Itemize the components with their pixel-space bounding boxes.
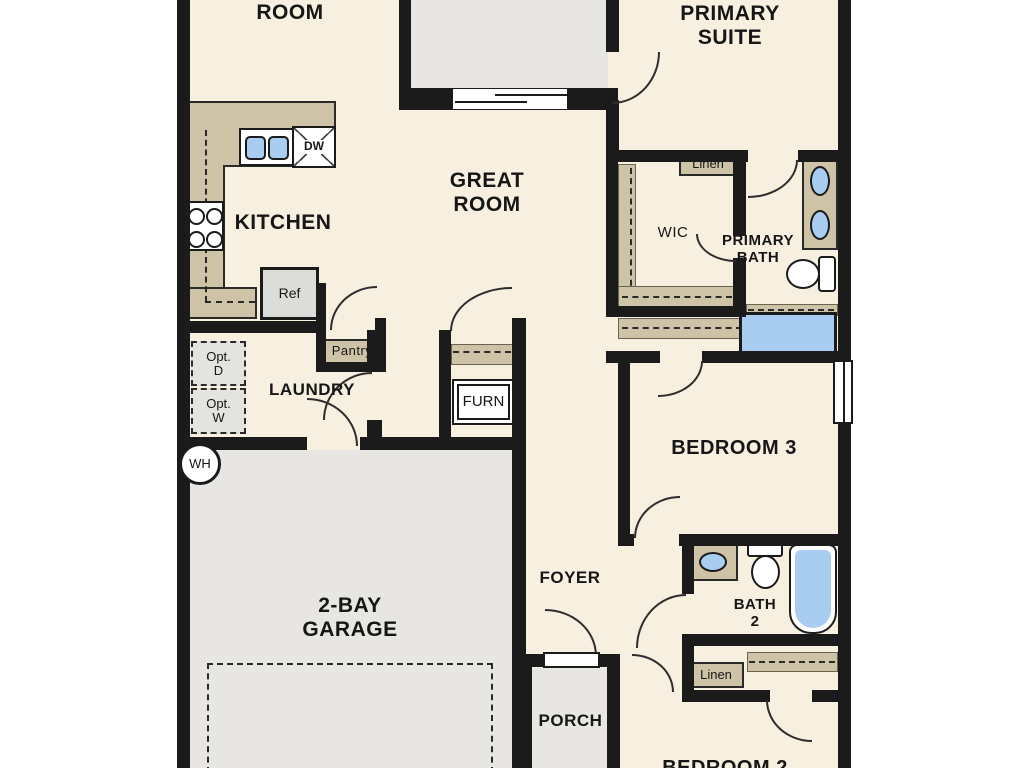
stove-burner <box>188 208 205 225</box>
dishwasher-label: DW <box>303 140 325 153</box>
room-label-garage: 2-BAY GARAGE <box>288 594 412 641</box>
wall <box>177 0 190 768</box>
bedroom3-window <box>833 360 853 424</box>
kitchen-sink <box>239 128 294 166</box>
stove-burner <box>206 231 223 248</box>
floor-plan: DW Ref Opt. D Opt. W FURN Linen <box>0 0 1024 768</box>
wall <box>618 534 634 546</box>
bath2-tub <box>789 544 837 634</box>
wall <box>606 150 748 162</box>
primary-vanity <box>802 154 838 250</box>
wall <box>733 162 746 236</box>
wall <box>702 351 851 363</box>
wall <box>838 0 851 362</box>
furnace-closet-shelf <box>451 344 513 365</box>
patio-floor <box>411 0 608 90</box>
stove-burner <box>206 208 223 225</box>
linen-lower-label: Linen <box>700 668 732 683</box>
room-label-great-room: GREAT ROOM <box>428 169 546 216</box>
pantry-label: Pantry <box>324 344 380 359</box>
front-door-leaf <box>543 652 600 668</box>
optional-washer-label: Opt. W <box>206 397 231 424</box>
room-label-porch: PORCH <box>531 711 610 730</box>
wall <box>838 420 851 768</box>
linen-closet-lower: Linen <box>688 662 744 688</box>
wic-shelf-dash <box>622 296 732 298</box>
optional-washer: Opt. W <box>191 388 246 434</box>
wall <box>367 420 382 450</box>
bedroom3-closet-dash <box>622 327 742 329</box>
counter-dash-line <box>205 301 255 303</box>
wall <box>812 690 851 702</box>
furnace-label: FURN <box>463 394 505 411</box>
room-label-foyer: FOYER <box>533 568 607 587</box>
sliding-door-panel <box>495 94 567 96</box>
primary-toilet-tank <box>818 256 836 292</box>
wall <box>399 88 454 110</box>
sliding-door-panel <box>455 101 527 103</box>
room-label-bedroom3: BEDROOM 3 <box>660 437 808 459</box>
bath2-toilet-bowl <box>751 555 780 589</box>
room-label-bath2: BATH 2 <box>728 597 782 631</box>
vanity-sink <box>699 552 727 572</box>
stove-burner <box>188 231 205 248</box>
wall <box>606 306 746 317</box>
wall <box>606 351 660 363</box>
room-label-primary-bath: PRIMARY BATH <box>712 233 804 267</box>
water-heater-label: WH <box>189 457 211 472</box>
furnace-shelf-dash <box>453 351 511 353</box>
room-label-primary-suite: PRIMARY SUITE <box>660 2 800 49</box>
wall <box>682 690 770 702</box>
sink-basin <box>268 136 289 160</box>
refrigerator: Ref <box>260 267 319 320</box>
sink-basin <box>245 136 266 160</box>
bath2-vanity <box>688 543 738 581</box>
wall <box>618 351 630 546</box>
bath2-tub-basin <box>795 550 831 628</box>
wall <box>439 330 451 448</box>
room-label-laundry: LAUNDRY <box>262 380 362 399</box>
wall <box>679 534 851 546</box>
wall <box>798 150 851 162</box>
optional-dryer-label: Opt. D <box>206 350 231 377</box>
optional-dryer: Opt. D <box>191 341 246 386</box>
vanity-sink <box>810 210 830 240</box>
primary-bath-shelf-dash <box>748 309 834 311</box>
kitchen-counter-corner <box>186 287 257 319</box>
wall <box>177 321 326 333</box>
room-label-wic: WIC <box>650 225 696 242</box>
room-label-kitchen: KITCHEN <box>228 211 338 235</box>
garage-dashed-outline <box>207 663 493 768</box>
patio-sliding-door <box>452 88 568 110</box>
bedroom2-closet-dash <box>749 661 835 663</box>
window-divider <box>843 362 845 422</box>
wall <box>682 634 851 646</box>
wall <box>606 0 619 52</box>
water-heater: WH <box>179 443 221 485</box>
refrigerator-label: Ref <box>279 286 301 302</box>
furnace: FURN <box>452 379 515 425</box>
vanity-sink <box>810 166 830 196</box>
room-label-bedroom2: BEDROOM 2 <box>650 757 800 768</box>
dishwasher: DW <box>292 126 336 168</box>
wall <box>682 546 694 594</box>
room-label-top-room: ROOM <box>235 1 345 25</box>
wall <box>606 162 618 314</box>
